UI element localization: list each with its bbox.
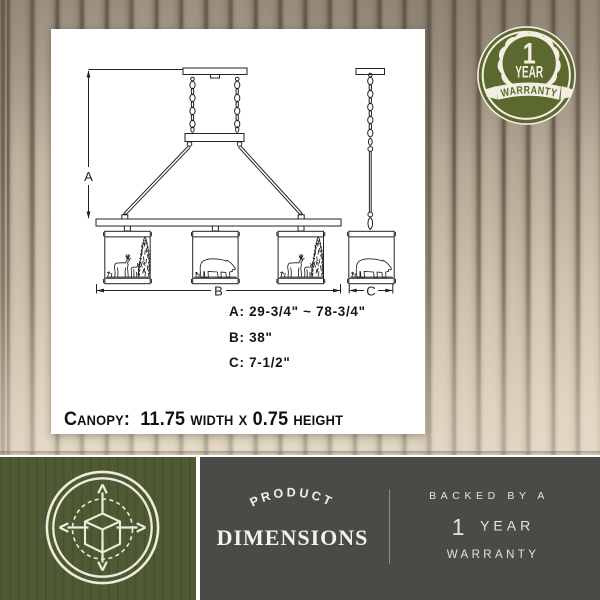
svg-text:PRODUCT: PRODUCT — [248, 485, 337, 509]
svg-text:A: A — [84, 169, 93, 184]
svg-text:YEAR: YEAR — [515, 64, 543, 82]
svg-text:C: C — [366, 284, 375, 299]
svg-text:B: B — [214, 284, 223, 299]
